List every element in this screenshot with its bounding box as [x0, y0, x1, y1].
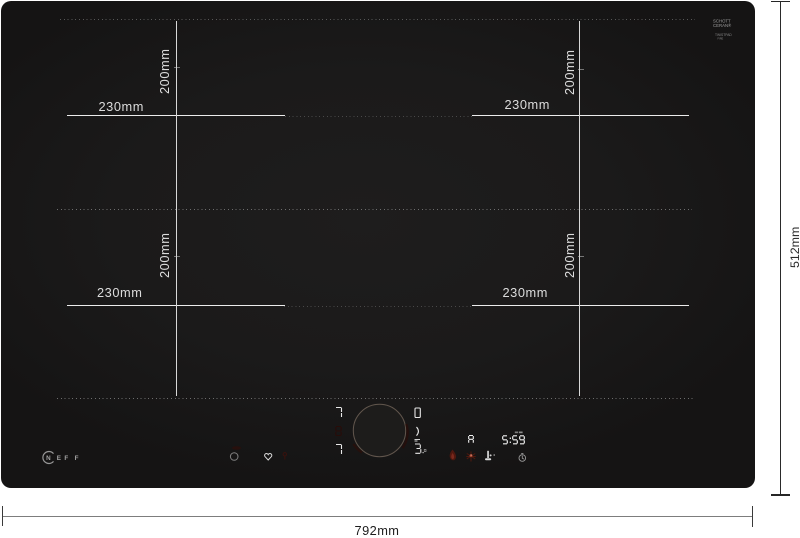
svg-text:E: E: [57, 455, 61, 462]
svg-text:N: N: [46, 455, 51, 462]
svg-text:F: F: [64, 455, 68, 462]
svg-text:F: F: [75, 455, 79, 462]
